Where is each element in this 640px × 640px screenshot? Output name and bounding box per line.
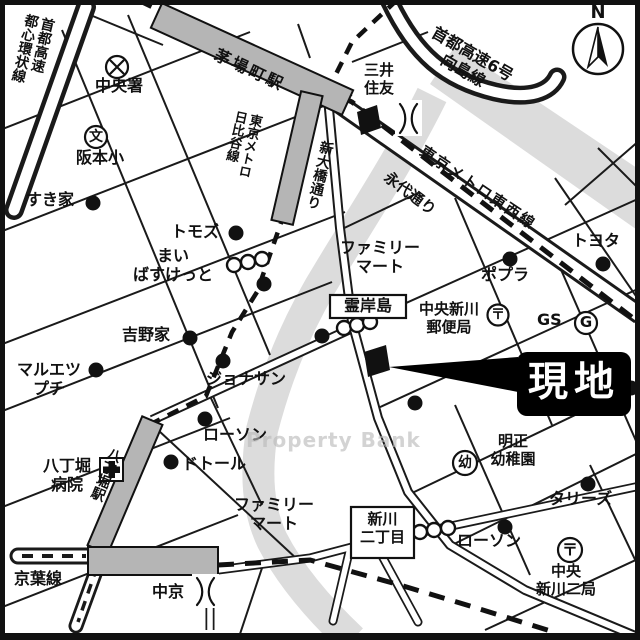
map-drawing: [0, 0, 640, 640]
kindergarten-icon: [453, 451, 477, 475]
hatchobori-jr-station-band: [88, 547, 218, 575]
site-marker-label: 現地: [524, 362, 624, 402]
gas-station-icon: [575, 312, 597, 334]
map-frame-bottom: [0, 633, 640, 640]
post-office-icon: [488, 305, 509, 326]
compass-north: [573, 24, 623, 74]
post-office-icon: [558, 538, 582, 562]
school-icon: [85, 126, 107, 148]
watermark-text: Property Bank: [246, 428, 421, 452]
shinkawa-box: [351, 507, 414, 558]
map-canvas: 首都高速 都心環状線中央署阪本小すき家茅場町駅東京メトロ 日比谷線新大橋通り三井…: [0, 0, 640, 640]
reiganjima-box: [330, 295, 406, 318]
